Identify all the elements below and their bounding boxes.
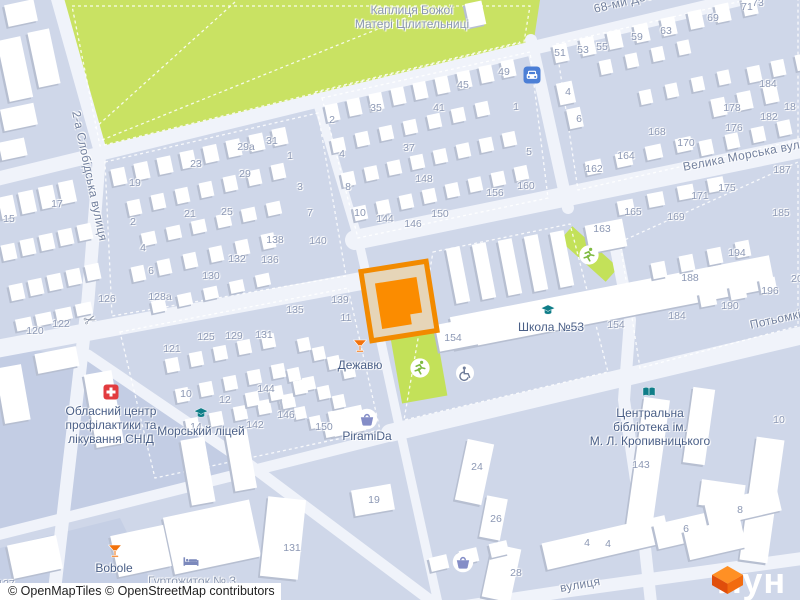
wheelchair-icon	[456, 364, 475, 383]
house-number: 136	[261, 254, 279, 266]
house-number: 148	[415, 173, 433, 185]
house-number: 29	[239, 168, 251, 180]
house-number: 20	[791, 273, 800, 285]
house-number: 122	[52, 318, 70, 330]
house-number: 129	[225, 330, 243, 342]
house-number: 176	[725, 122, 743, 134]
street-label: вулиця	[559, 574, 602, 595]
house-number: 4	[140, 242, 146, 254]
school-icon	[194, 406, 209, 420]
house-number: 12	[219, 394, 231, 406]
house-number: 19	[129, 177, 141, 189]
house-number: 21	[184, 208, 196, 220]
house-number: 35	[370, 102, 382, 114]
house-number: 196	[761, 285, 779, 297]
street-label: 68-ми Десантників	[592, 0, 700, 16]
house-number: 1	[513, 101, 519, 113]
house-number: 146	[404, 218, 422, 230]
house-number: 185	[772, 207, 790, 219]
house-number: 17	[51, 198, 63, 210]
house-number: 184	[759, 78, 777, 90]
poi-label-dejavu-bar: Дежавю	[338, 358, 383, 372]
house-number: 194	[728, 247, 746, 259]
book-icon	[642, 386, 657, 399]
house-number: 19	[368, 494, 380, 506]
house-number: 146	[277, 409, 295, 421]
house-number: 53	[577, 44, 589, 56]
house-number: 138	[266, 234, 284, 246]
house-number: 128а	[148, 291, 171, 303]
house-number: 125	[197, 331, 215, 343]
poi-label-aids-center: Обласний центрпрофілактики талікування С…	[66, 404, 157, 446]
house-number: 131	[283, 542, 301, 554]
house-number: 6	[148, 265, 154, 277]
attribution[interactable]: © OpenMapTiles © OpenStreetMap contribut…	[0, 583, 281, 600]
house-number: 49	[498, 66, 510, 78]
house-number: 164	[617, 150, 635, 162]
bed-icon	[184, 556, 199, 568]
house-number: 2	[130, 216, 136, 228]
house-number: 31	[266, 135, 278, 147]
house-number: 10	[773, 414, 785, 426]
house-number: 154	[444, 332, 462, 344]
house-number: 7	[307, 207, 313, 219]
house-number: 144	[376, 213, 394, 225]
house-number: 175	[718, 182, 736, 194]
house-number: 132	[228, 253, 246, 265]
cocktail-icon	[107, 543, 123, 559]
house-number: 135	[286, 304, 304, 316]
house-number: 29а	[237, 141, 255, 153]
house-number: 188	[681, 272, 699, 284]
basket-icon	[453, 552, 474, 573]
house-number: 144	[257, 383, 275, 395]
house-number: 10	[180, 388, 192, 400]
house-number: 10	[354, 207, 366, 219]
house-number: 160	[517, 180, 535, 192]
house-number: 139	[331, 294, 349, 306]
house-number: 6	[683, 523, 689, 535]
house-number: 163	[593, 223, 611, 235]
house-number: 51	[554, 47, 566, 59]
house-number: 130	[202, 270, 220, 282]
house-number: 4	[339, 148, 345, 160]
house-number: 120	[26, 325, 44, 337]
house-number: 25	[221, 206, 233, 218]
map-canvas[interactable]: 1517120122126127192329а31291372462125128…	[0, 0, 800, 600]
poi-label-school-53: Школа №53	[518, 320, 584, 334]
house-number: 71	[741, 1, 753, 13]
house-number: 184	[668, 310, 686, 322]
house-number: 59	[631, 31, 643, 43]
house-number: 150	[431, 208, 449, 220]
hospital-icon	[104, 385, 119, 400]
house-number: 69	[707, 12, 719, 24]
house-number: 8	[345, 181, 351, 193]
house-number: 1	[287, 150, 293, 162]
house-number: 162	[585, 163, 603, 175]
house-number: 15	[3, 213, 15, 225]
house-number: 168	[648, 126, 666, 138]
house-number: 140	[309, 235, 327, 247]
house-number: 178	[723, 102, 741, 114]
house-number: 4	[565, 86, 571, 98]
house-number: 2	[329, 114, 335, 126]
poi-label-bobole-bar: Bobole	[95, 561, 132, 575]
house-number: 18	[784, 101, 796, 113]
house-number: 41	[433, 102, 445, 114]
house-number: 121	[163, 343, 181, 355]
house-number: 11	[341, 312, 352, 324]
school-icon	[541, 303, 556, 317]
lun-cube-icon	[712, 566, 743, 594]
house-number: 182	[760, 111, 778, 123]
house-number: 143	[632, 459, 650, 471]
house-number: 55	[596, 41, 608, 53]
house-number: 154	[607, 319, 625, 331]
house-number: 190	[721, 300, 739, 312]
house-number: 3	[297, 181, 303, 193]
house-number: 165	[624, 206, 642, 218]
house-number: 4	[584, 537, 590, 549]
house-number: 28	[510, 567, 522, 579]
house-number: 6	[576, 113, 582, 125]
house-number: 45	[457, 79, 469, 91]
street-label: 2-а Слобідська вулиця	[69, 110, 110, 243]
house-number: 171	[691, 190, 709, 202]
basket-icon	[357, 409, 378, 430]
house-number: 187	[773, 164, 791, 176]
running-icon	[410, 358, 430, 378]
poi-label-naval-lyceum: Морський ліцей	[157, 424, 245, 438]
poi-label-chapel: Каплиця БожоїМатері Цілительниці	[355, 3, 469, 31]
house-number: 24	[471, 461, 483, 473]
house-number: 8	[737, 504, 743, 516]
map-labels-layer: 1517120122126127192329а31291372462125128…	[0, 0, 800, 600]
house-number: 73	[752, 0, 764, 9]
house-number: 142	[246, 419, 264, 431]
house-number: 126	[98, 293, 116, 305]
running-icon	[579, 245, 599, 265]
poi-label-piramida-shop: PiramiDa	[342, 429, 391, 443]
cocktail-icon	[352, 338, 368, 354]
house-number: 5	[526, 146, 532, 158]
house-number: 26	[490, 513, 502, 525]
car-icon	[524, 67, 541, 84]
scissors-icon: ✂	[81, 309, 99, 330]
house-number: 150	[315, 421, 333, 433]
house-number: 131	[255, 329, 273, 341]
street-label: Потьомкінська	[748, 300, 800, 332]
lun-logo[interactable]: лун	[712, 566, 786, 596]
poi-label-central-library: Центральнабібліотека ім.М. Л. Кропивниць…	[590, 406, 710, 448]
house-number: 156	[486, 187, 504, 199]
house-number: 170	[677, 137, 695, 149]
house-number: 37	[403, 142, 415, 154]
house-number: 4	[605, 538, 611, 550]
house-number: 63	[660, 25, 672, 37]
house-number: 169	[667, 211, 685, 223]
house-number: 23	[190, 158, 202, 170]
